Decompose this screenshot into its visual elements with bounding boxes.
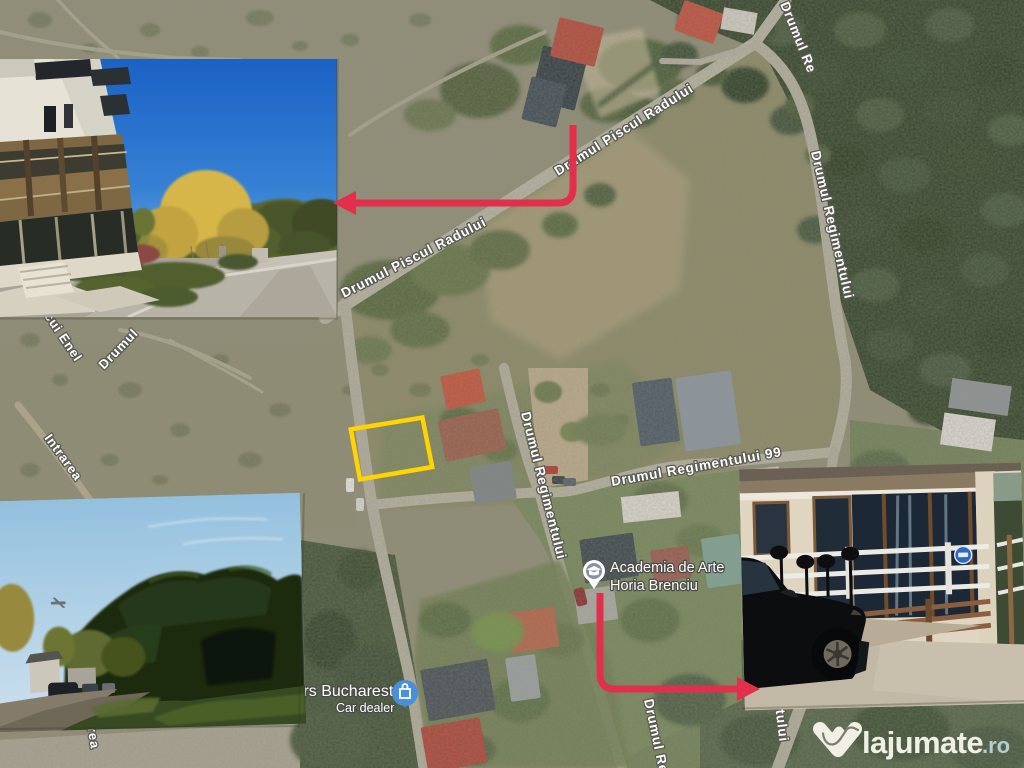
- svg-text:.ro: .ro: [982, 733, 1010, 758]
- svg-text:Academia de Arte: Academia de Arte: [610, 560, 724, 576]
- svg-text:Car dealer: Car dealer: [336, 701, 394, 715]
- svg-text:lajumate: lajumate: [862, 725, 983, 760]
- svg-text:Horia Brenciu: Horia Brenciu: [610, 578, 698, 594]
